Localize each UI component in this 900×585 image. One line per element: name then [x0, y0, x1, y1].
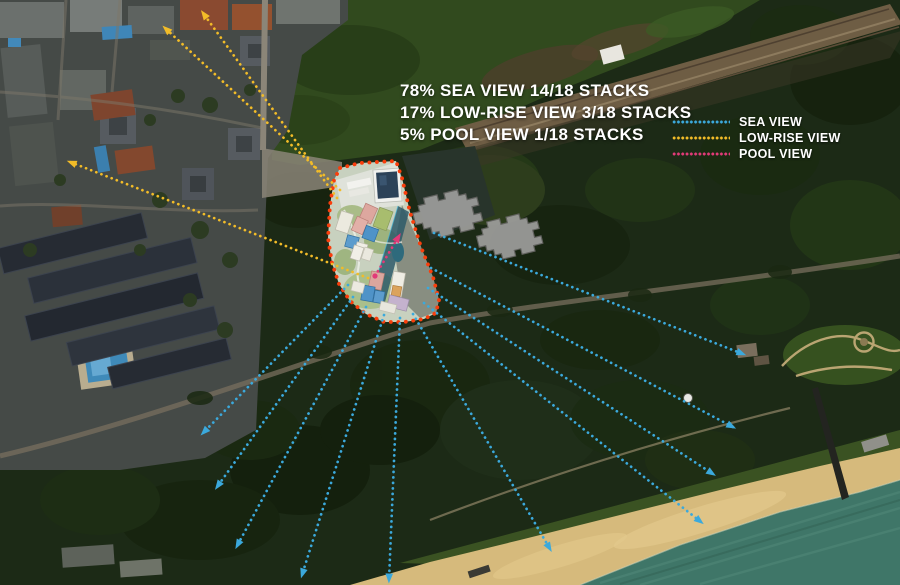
neighbor-building-footprint — [410, 186, 484, 243]
legend-row-low-rise-view: LOW-RISE VIEW — [672, 130, 841, 146]
view-arrow-low-rise-view — [201, 10, 337, 198]
view-arrow-sea-view — [428, 288, 716, 476]
view-arrow-sea-view — [300, 315, 384, 578]
arrowhead — [543, 541, 551, 552]
legend-label-low-rise-view: LOW-RISE VIEW — [739, 131, 841, 145]
legend-row-sea-view: SEA VIEW — [672, 114, 841, 130]
view-arrow-sea-view — [235, 307, 366, 549]
sea-view-dotted-line-swatch — [672, 120, 730, 124]
arrowhead — [235, 538, 243, 549]
neighbor-building-footprint — [474, 210, 544, 264]
view-arrow-sea-view — [424, 303, 704, 524]
site-boundary — [328, 161, 439, 322]
view-stats: 78% SEA VIEW 14/18 STACKS 17% LOW-RISE V… — [400, 80, 691, 146]
low-rise-view-dotted-line-swatch — [672, 136, 730, 140]
legend-label-sea-view: SEA VIEW — [739, 115, 802, 129]
arrowhead — [385, 573, 393, 583]
arrowhead — [694, 515, 704, 524]
legend: SEA VIEW LOW-RISE VIEW POOL VIEW — [672, 114, 841, 162]
legend-row-pool-view: POOL VIEW — [672, 146, 841, 162]
stat-line-pool-view: 5% POOL VIEW 1/18 STACKS — [400, 124, 691, 146]
legend-label-pool-view: POOL VIEW — [739, 147, 812, 161]
arrowhead — [300, 568, 307, 579]
arrowhead — [67, 161, 78, 168]
view-analysis-map: 78% SEA VIEW 14/18 STACKS 17% LOW-RISE V… — [0, 0, 900, 585]
view-arrow-low-rise-view — [162, 26, 340, 190]
view-arrow-sea-view — [201, 285, 348, 436]
stat-line-low-rise-view: 17% LOW-RISE VIEW 3/18 STACKS — [400, 102, 691, 124]
view-arrow-sea-view — [215, 297, 353, 490]
view-arrow-low-rise-view — [67, 161, 368, 278]
arrowhead — [392, 233, 400, 244]
arrowhead — [736, 348, 747, 355]
view-arrow-sea-view — [413, 314, 552, 552]
stat-line-sea-view: 78% SEA VIEW 14/18 STACKS — [400, 80, 691, 102]
view-arrow-sea-view — [385, 318, 400, 583]
arrowhead — [705, 467, 715, 476]
arrowhead — [725, 421, 736, 429]
pool-view-dotted-line-swatch — [672, 152, 730, 156]
view-arrow-pool-view — [372, 233, 400, 279]
